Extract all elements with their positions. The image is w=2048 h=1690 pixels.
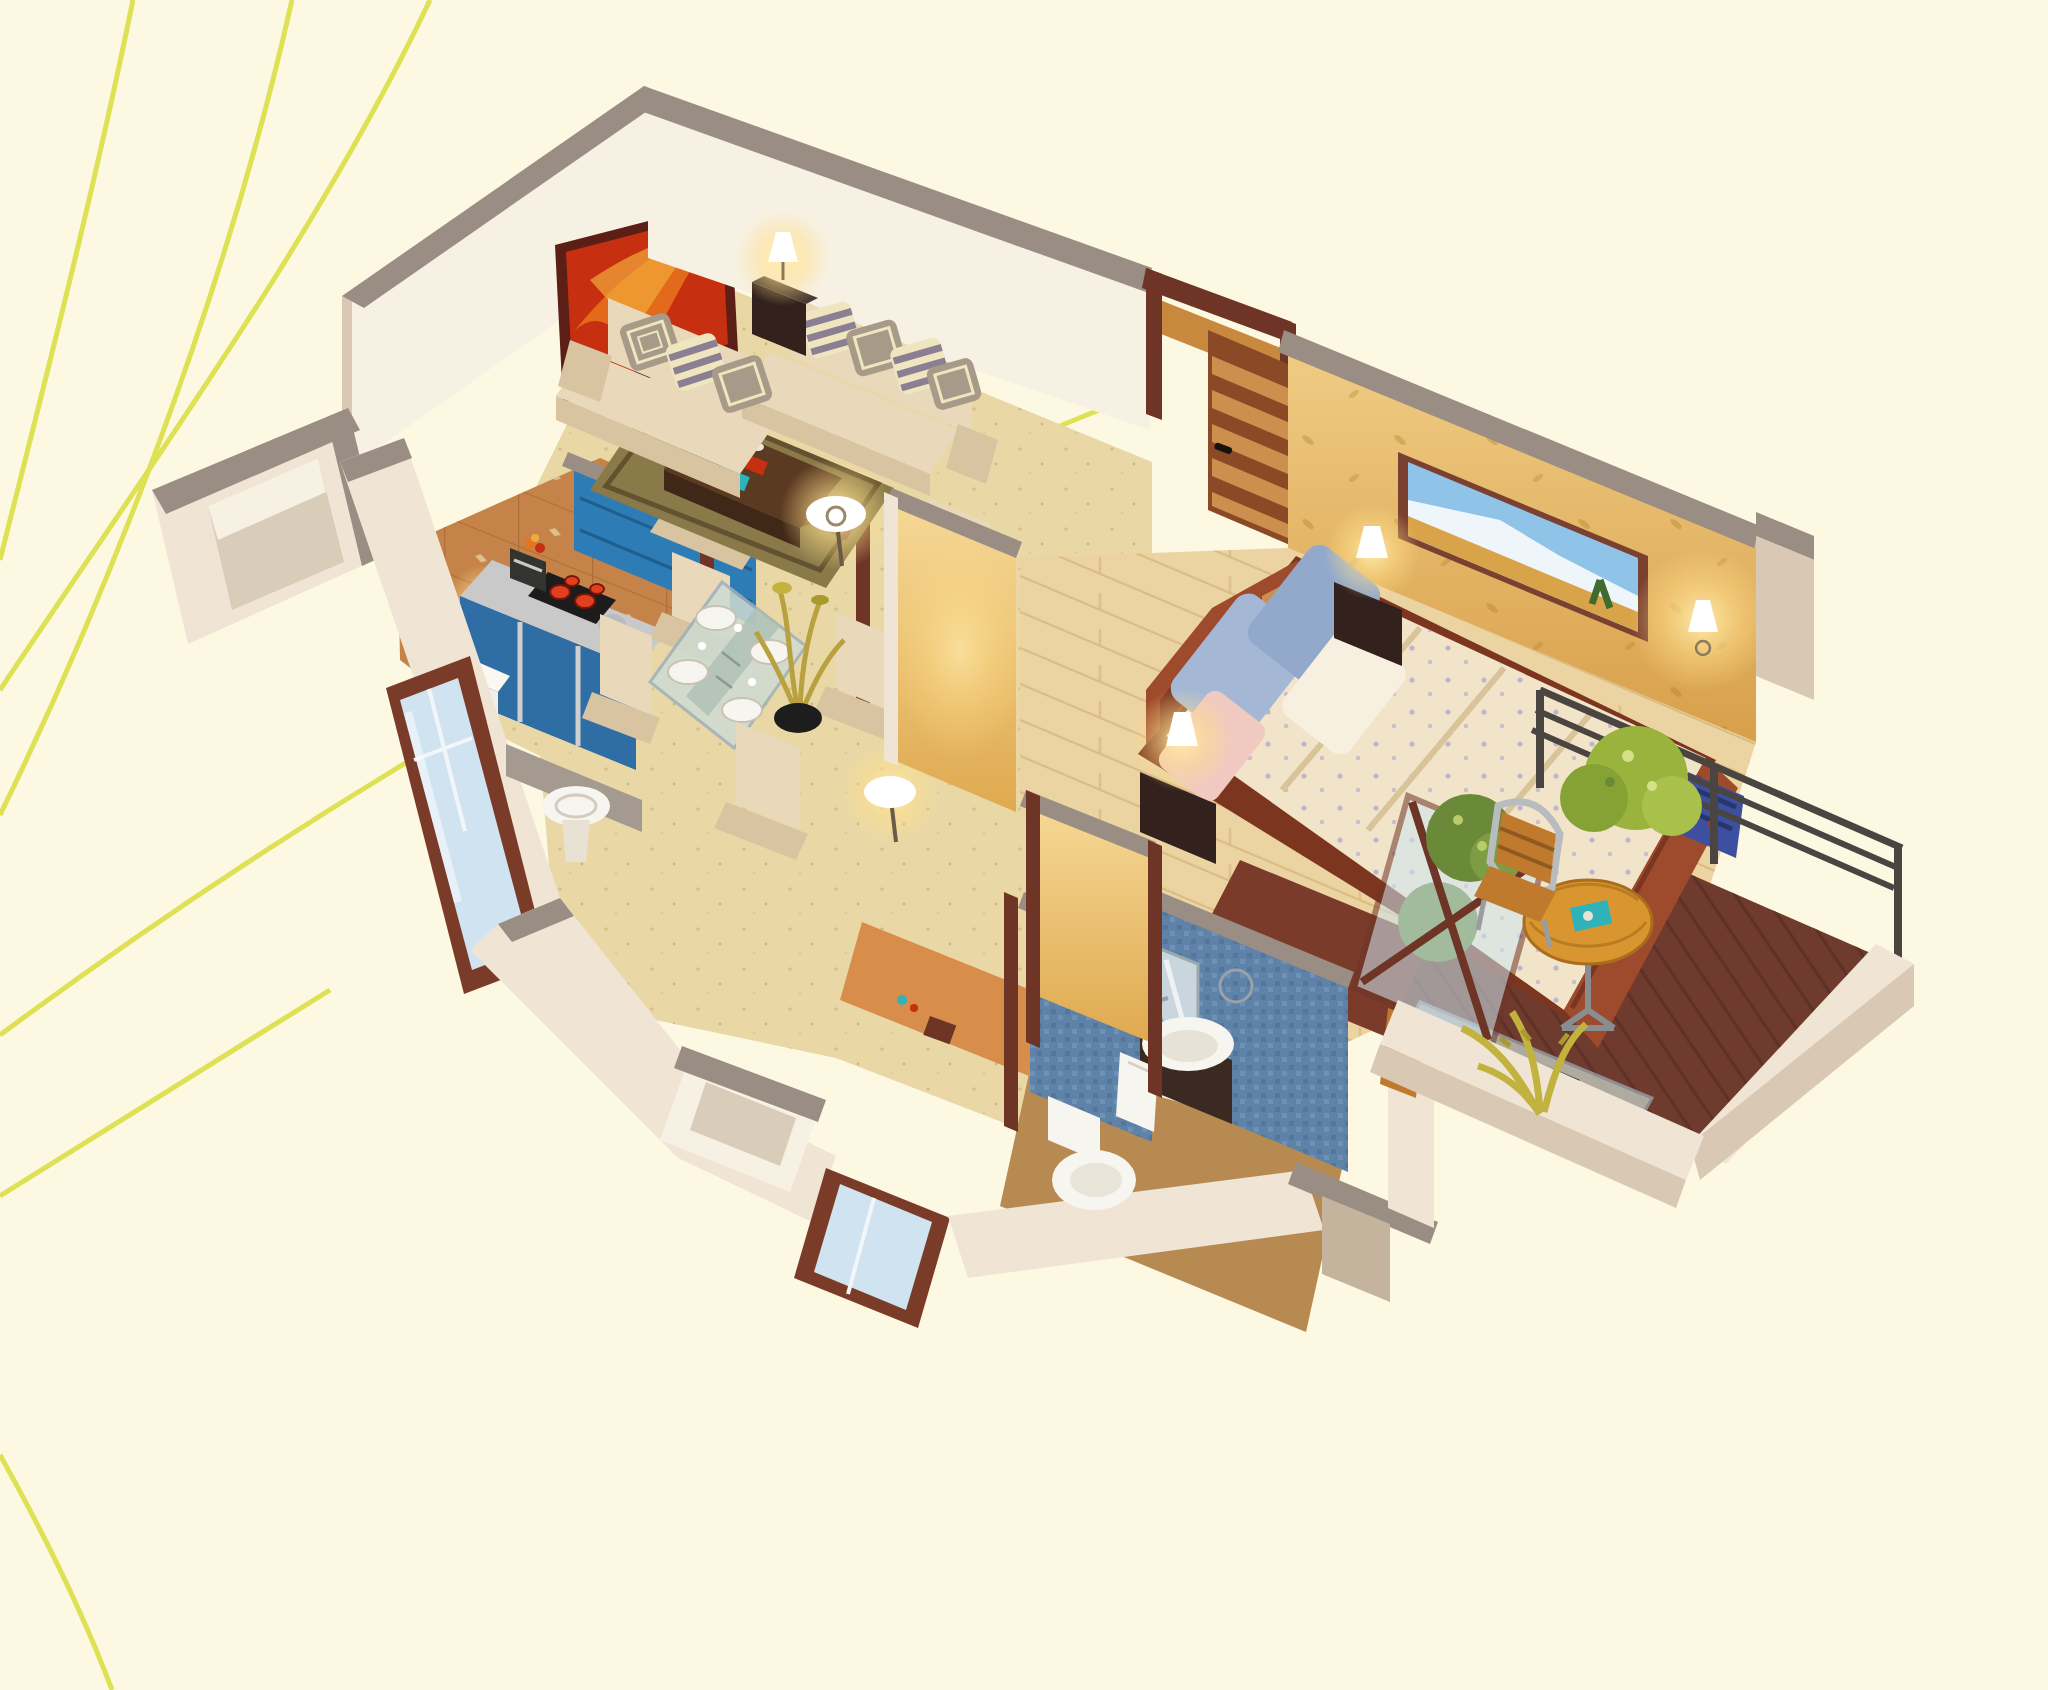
plant-pot [774,703,822,733]
wall-end-edge [884,492,898,766]
right-corner-wall [1756,536,1814,700]
burner [550,585,570,599]
burner [590,584,604,594]
bath-door-post [1004,892,1018,1132]
basin-pedestal [562,820,590,862]
door-jamb [1146,268,1162,420]
bedroom-wall-lamp [1630,548,1774,692]
floor-lamp [780,458,892,570]
frame-post [1148,840,1162,1098]
trinket [897,995,907,1005]
frame-post [1026,790,1040,1048]
trinket [910,1004,918,1012]
burner [575,594,595,608]
wall-glow [890,540,1030,760]
burner [565,576,579,586]
apartment-isometric-render [0,0,2048,1690]
